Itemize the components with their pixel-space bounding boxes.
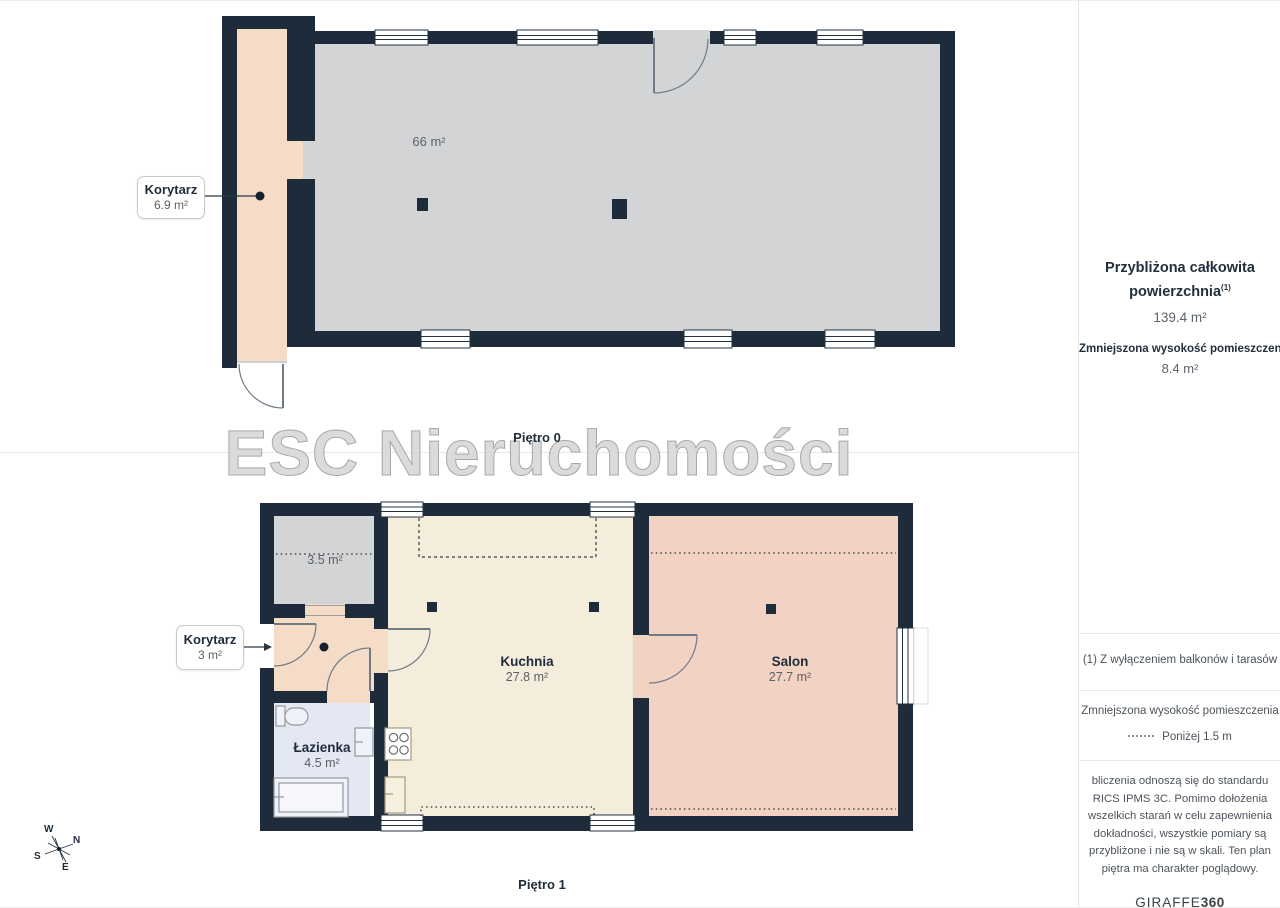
legend-title: Zmniejszona wysokość pomieszczenia [1079, 705, 1280, 717]
column [766, 604, 776, 614]
sidebar-divider [1079, 633, 1280, 634]
legend-value: Poniżej 1.5 m [1162, 731, 1232, 743]
column [427, 602, 437, 612]
wall [260, 503, 913, 516]
brand-number: 360 [1201, 895, 1225, 908]
floor1-entrance-opening [258, 624, 274, 668]
disclaimer-section: bliczenia odnoszą się do standardu RICS … [1079, 773, 1280, 908]
sidebar-divider [1079, 690, 1280, 691]
sidebar-divider [1079, 760, 1280, 761]
column [612, 199, 627, 219]
disclaimer-text: bliczenia odnoszą się do standardu RICS … [1079, 773, 1280, 878]
legend-section: Zmniejszona wysokość pomieszczenia Poniż… [1079, 705, 1280, 745]
total-area-title: Przybliżona całkowita powierzchnia(1) [1079, 259, 1280, 302]
floor1-livingroom-door-opening [633, 635, 649, 698]
compass-icon [45, 836, 73, 862]
floor1-bathroom-label: Łazienka 4.5 m² [262, 740, 382, 771]
wall [287, 179, 315, 347]
column [417, 198, 428, 211]
wall [222, 16, 237, 368]
floor1-livingroom-label: Salon 27.7 m² [730, 654, 850, 685]
floor1-corridor-callout: Korytarz 3 m² [176, 625, 244, 670]
footnote-text: (1) Z wyłączeniem balkonów i tarasów [1079, 654, 1280, 666]
total-area-title-line2: powierzchnia [1129, 284, 1221, 300]
total-area-value: 139.4 m² [1079, 310, 1280, 325]
column [589, 602, 599, 612]
footnote-marker: (1) [1221, 283, 1231, 292]
floor0-main-room-floor [315, 44, 940, 331]
room-name: Łazienka [262, 740, 382, 756]
room-area: 4.5 m² [262, 756, 382, 771]
floor1-corridor-floor [274, 618, 374, 691]
info-sidebar: Przybliżona całkowita powierzchnia(1) 13… [1078, 1, 1280, 907]
room-area: 3 m² [177, 648, 243, 663]
floor1-kitchen-door-opening [374, 629, 388, 673]
legend-row: Poniżej 1.5 m [1079, 727, 1280, 745]
room-area: 6.9 m² [138, 198, 204, 213]
floor0-corridor-opening [303, 141, 315, 179]
brand-name: GIRAFFE [1135, 895, 1201, 908]
floor1-storage-area-label: 3.5 m² [275, 553, 375, 567]
floorplan-page: ESC Nieruchomości 66 m² Korytarz 6.9 m² … [0, 0, 1280, 908]
floor1-storage-opening [305, 604, 345, 618]
compass-label-s: S [34, 851, 41, 862]
watermark: ESC Nieruchomości [0, 416, 1078, 490]
room-name: Korytarz [177, 632, 243, 648]
compass-label-n: N [73, 835, 80, 846]
floor0-corridor-callout: Korytarz 6.9 m² [137, 176, 205, 219]
wall [303, 31, 955, 44]
total-area-title-line1: Przybliżona całkowita [1105, 260, 1255, 276]
floor1-bathroom-door-opening [327, 691, 370, 703]
room-name: Korytarz [138, 182, 204, 198]
wall [303, 331, 955, 347]
compass-label-w: W [44, 824, 53, 835]
floor0-door-opening [653, 30, 710, 45]
total-area-section: Przybliżona całkowita powierzchnia(1) 13… [1079, 259, 1280, 376]
floor0-name: Piętro 0 [457, 430, 617, 445]
compass-label-e: E [62, 862, 69, 873]
room-name: Salon [730, 654, 850, 670]
floor0-main-area-label: 66 m² [379, 134, 479, 149]
dotted-line-icon [1128, 735, 1154, 737]
floor0-corridor-floor [237, 29, 287, 361]
wall [260, 816, 913, 831]
floor0-corridor-opening [287, 141, 303, 179]
wall [898, 503, 913, 831]
floor1-kitchen-label: Kuchnia 27.8 m² [467, 654, 587, 685]
reduced-height-value: 8.4 m² [1079, 361, 1280, 376]
room-area: 27.8 m² [467, 670, 587, 685]
reduced-height-title: Zmniejszona wysokość pomieszczenia [1079, 343, 1280, 355]
room-name: Kuchnia [467, 654, 587, 670]
wall [940, 31, 955, 347]
floor1-name: Piętro 1 [462, 877, 622, 892]
room-area: 27.7 m² [730, 670, 850, 685]
footnote-section: (1) Z wyłączeniem balkonów i tarasów [1079, 654, 1280, 666]
